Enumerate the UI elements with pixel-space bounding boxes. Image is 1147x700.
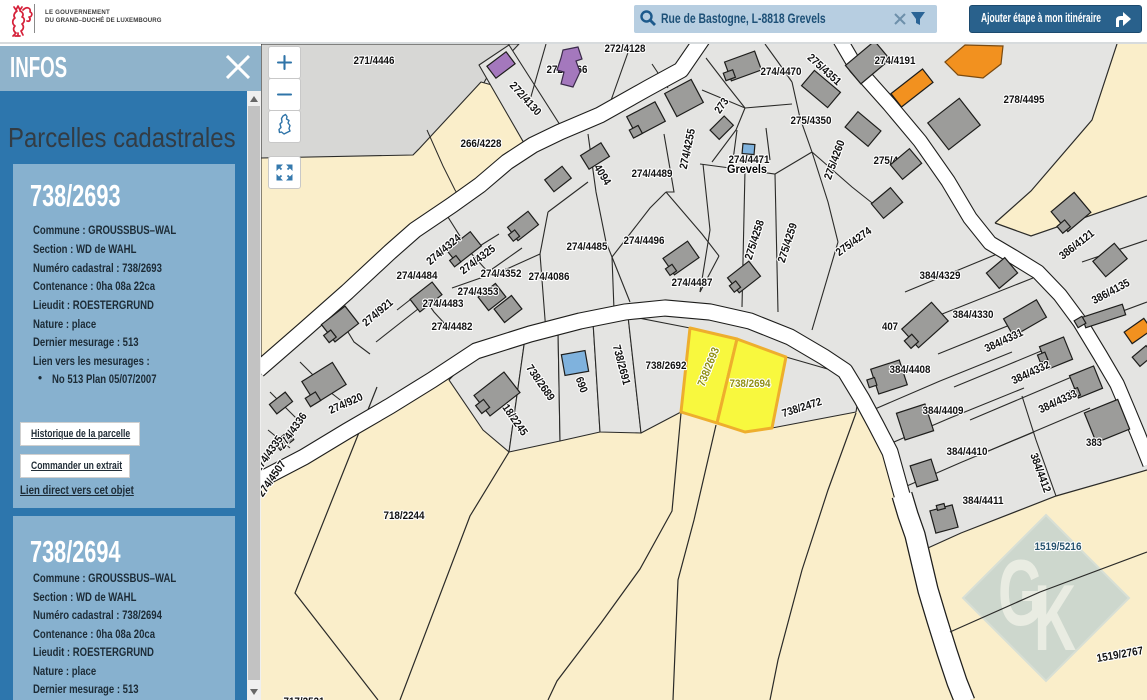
svg-text:274/4353: 274/4353	[458, 286, 499, 298]
svg-text:1519/5216: 1519/5216	[1035, 541, 1082, 553]
svg-text:717/2521: 717/2521	[284, 696, 325, 700]
svg-text:274/4352: 274/4352	[481, 268, 522, 280]
svg-text:718/2244: 718/2244	[384, 510, 426, 522]
svg-text:274/4482: 274/4482	[432, 321, 473, 333]
svg-text:274/4484: 274/4484	[397, 270, 439, 282]
svg-text:384/4408: 384/4408	[890, 364, 931, 376]
svg-text:275/4350: 275/4350	[791, 115, 832, 127]
svg-text:274/4470: 274/4470	[761, 66, 802, 78]
svg-text:738/2692: 738/2692	[646, 360, 687, 372]
svg-text:274/4191: 274/4191	[875, 55, 916, 67]
svg-text:274/4483: 274/4483	[423, 298, 464, 310]
svg-text:271/4446: 271/4446	[354, 55, 395, 67]
svg-text:272/4128: 272/4128	[605, 44, 646, 55]
svg-text:384/4329: 384/4329	[920, 270, 961, 282]
svg-text:278/4495: 278/4495	[1004, 94, 1045, 106]
svg-text:384/4411: 384/4411	[963, 495, 1004, 507]
svg-text:384/4330: 384/4330	[953, 309, 994, 321]
svg-text:274/4489: 274/4489	[632, 168, 673, 180]
svg-text:383: 383	[1086, 437, 1102, 449]
svg-text:274/4086: 274/4086	[529, 271, 570, 283]
svg-text:384/4410: 384/4410	[947, 446, 988, 458]
svg-text:407: 407	[882, 321, 898, 333]
svg-text:274/4487: 274/4487	[672, 277, 713, 289]
svg-text:Grevels: Grevels	[727, 164, 767, 176]
svg-text:384/4409: 384/4409	[923, 405, 964, 417]
svg-text:274/4485: 274/4485	[567, 241, 608, 253]
svg-text:266/4228: 266/4228	[461, 138, 502, 150]
svg-text:274/4496: 274/4496	[624, 235, 665, 247]
svg-text:738/2694: 738/2694	[730, 378, 772, 390]
